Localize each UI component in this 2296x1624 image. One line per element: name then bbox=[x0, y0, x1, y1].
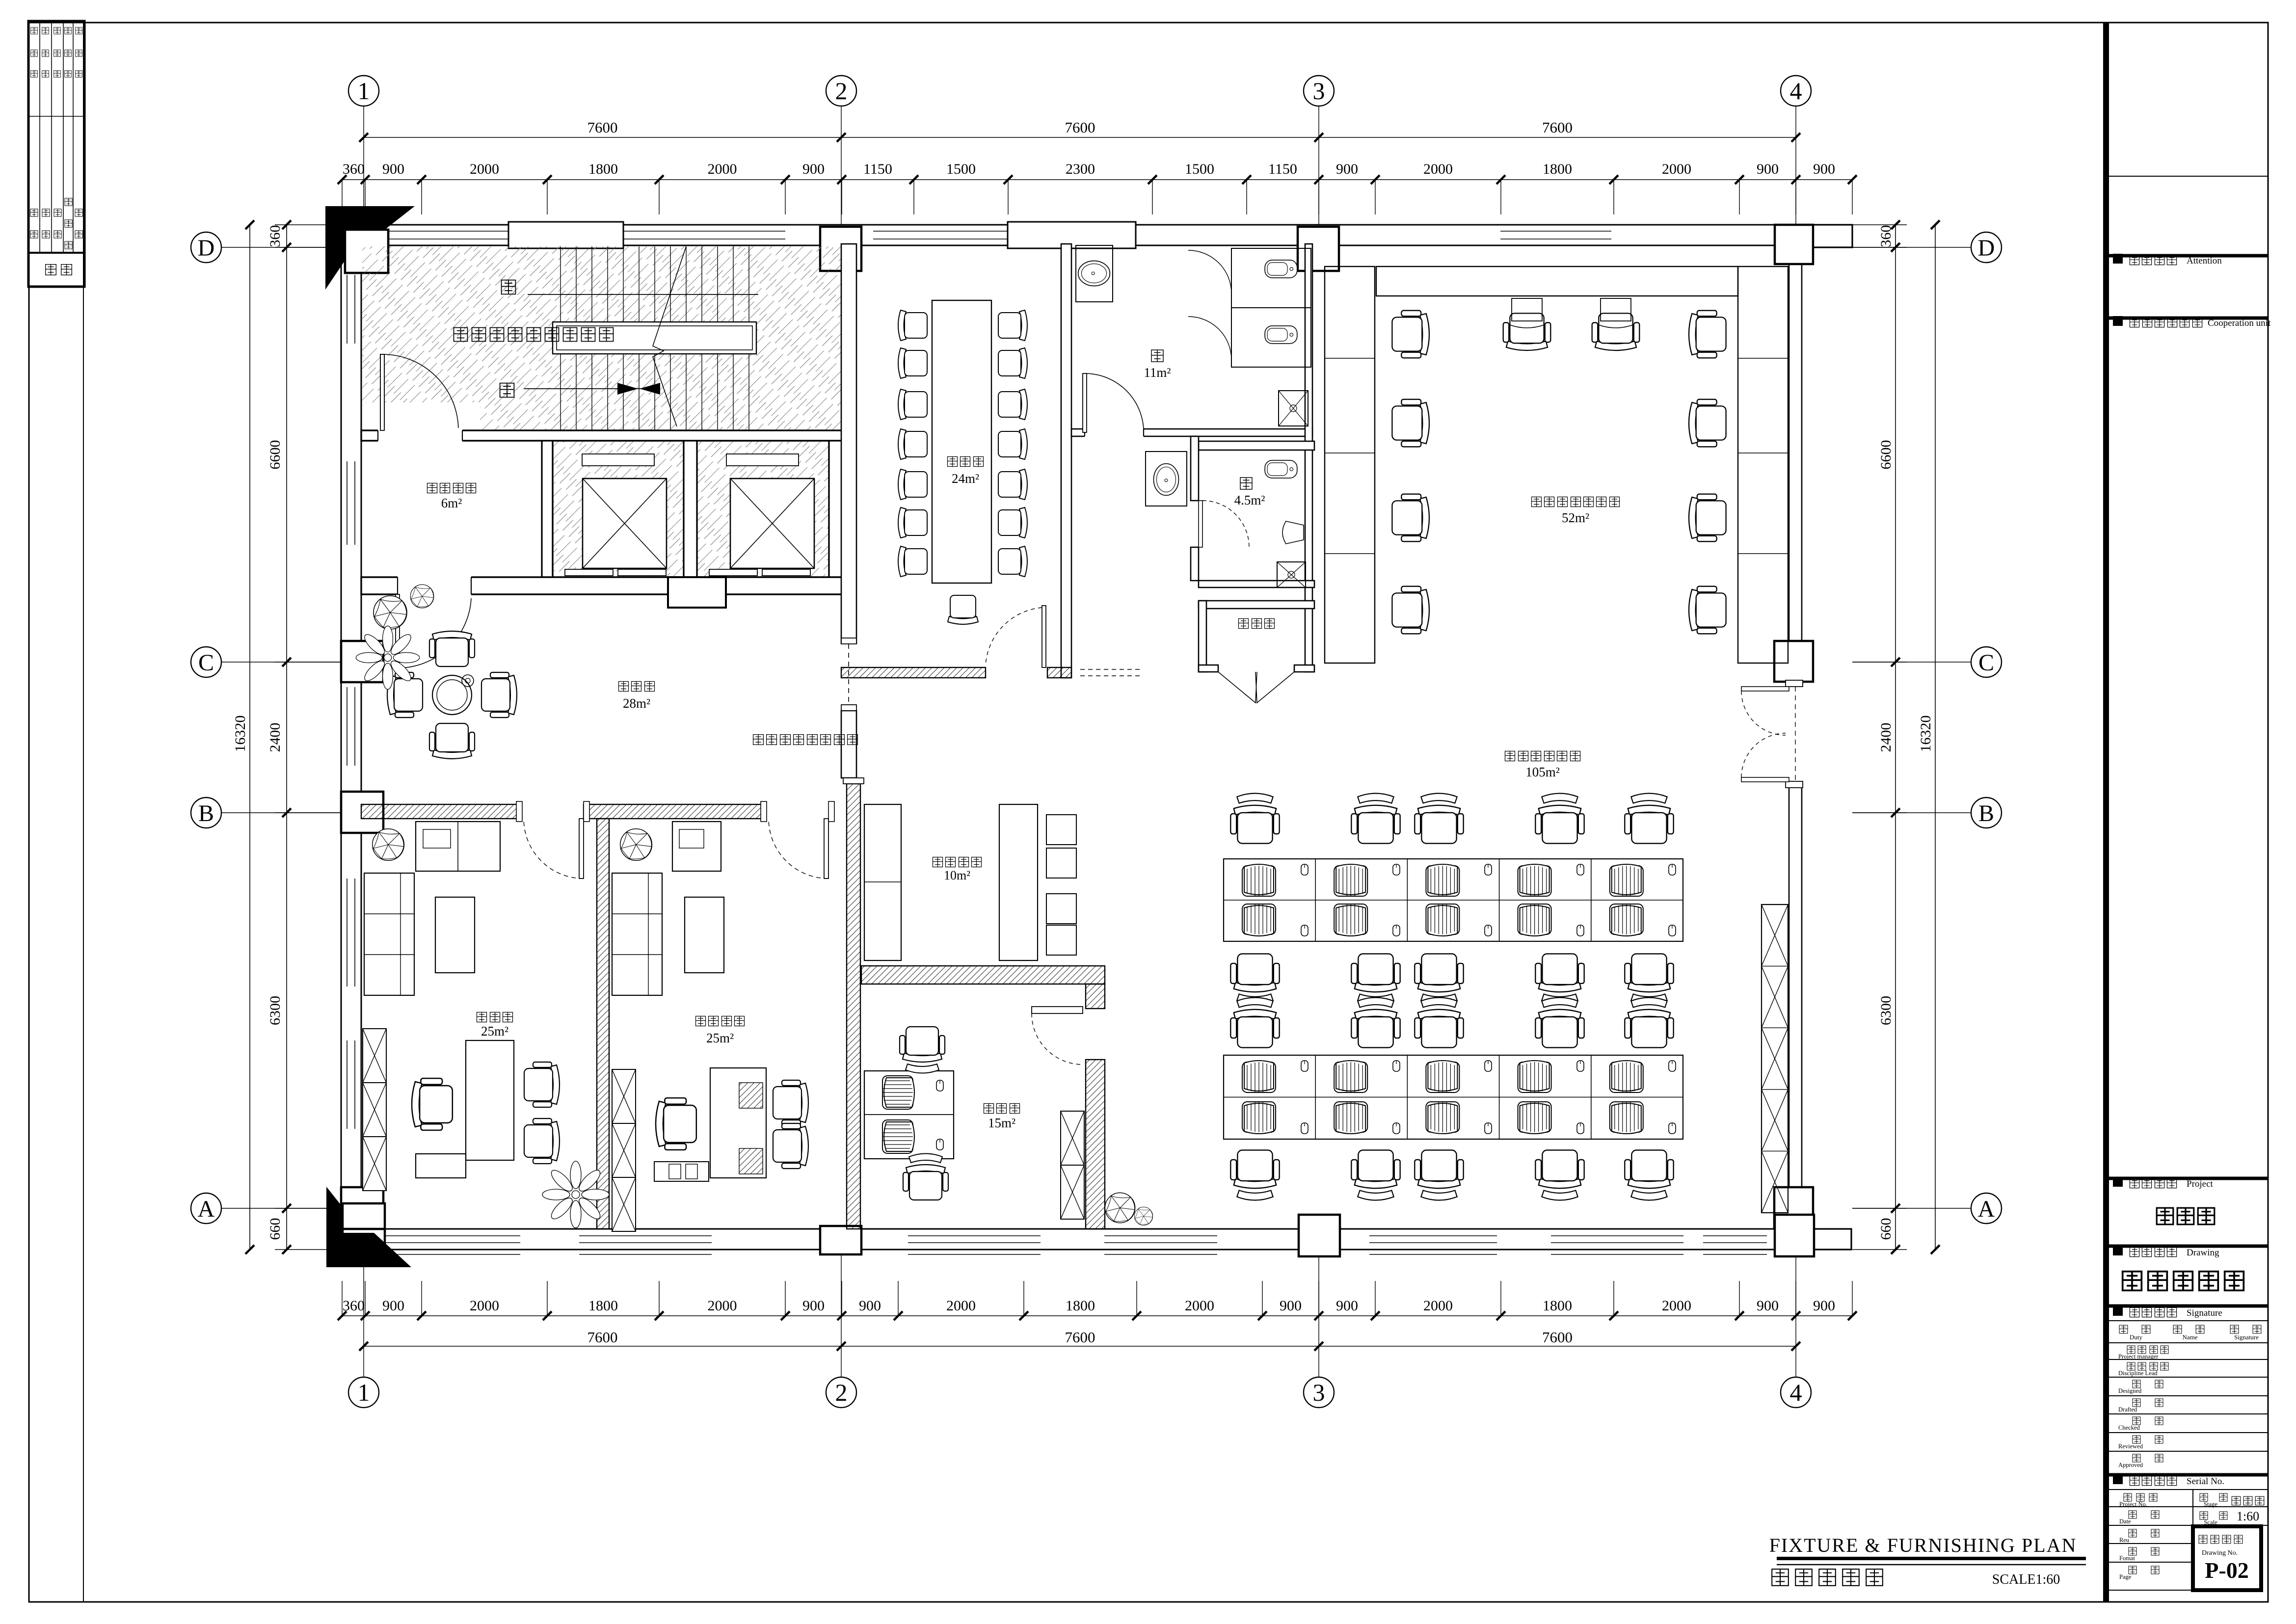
svg-text:360: 360 bbox=[343, 1298, 365, 1314]
svg-text:360: 360 bbox=[267, 225, 283, 247]
svg-text:2300: 2300 bbox=[1066, 161, 1095, 177]
svg-text:Fomat: Fomat bbox=[2119, 1555, 2135, 1562]
svg-text:4.5m²: 4.5m² bbox=[1234, 493, 1265, 507]
svg-text:15m²: 15m² bbox=[988, 1116, 1015, 1130]
svg-text:6m²: 6m² bbox=[441, 496, 462, 510]
svg-text:1800: 1800 bbox=[588, 161, 618, 177]
svg-text:28m²: 28m² bbox=[623, 696, 650, 711]
svg-text:7600: 7600 bbox=[1542, 1329, 1573, 1346]
svg-text:25m²: 25m² bbox=[706, 1031, 734, 1045]
svg-text:Designed: Designed bbox=[2118, 1387, 2142, 1394]
svg-text:Drafted: Drafted bbox=[2118, 1406, 2137, 1413]
svg-text:2000: 2000 bbox=[946, 1298, 976, 1314]
svg-text:900: 900 bbox=[1757, 161, 1779, 177]
svg-text:660: 660 bbox=[1878, 1218, 1894, 1240]
svg-text:900: 900 bbox=[1757, 1298, 1779, 1314]
svg-text:Checked: Checked bbox=[2118, 1424, 2140, 1431]
svg-text:25m²: 25m² bbox=[481, 1024, 508, 1038]
svg-text:2000: 2000 bbox=[1185, 1298, 1214, 1314]
svg-text:52m²: 52m² bbox=[1562, 510, 1589, 525]
svg-text:900: 900 bbox=[1280, 1298, 1302, 1314]
svg-text:Reu: Reu bbox=[2119, 1537, 2130, 1544]
svg-text:Duty: Duty bbox=[2130, 1333, 2143, 1341]
svg-text:16320: 16320 bbox=[1918, 716, 1934, 752]
svg-text:900: 900 bbox=[1336, 1298, 1358, 1314]
svg-text:B: B bbox=[1978, 800, 1994, 826]
svg-text:360: 360 bbox=[343, 161, 365, 177]
svg-text:900: 900 bbox=[802, 1298, 825, 1314]
svg-text:11m²: 11m² bbox=[1144, 365, 1171, 380]
svg-text:900: 900 bbox=[382, 161, 404, 177]
svg-text:SCALE1:60: SCALE1:60 bbox=[1992, 1572, 2060, 1587]
svg-text:6300: 6300 bbox=[267, 996, 283, 1025]
svg-text:4: 4 bbox=[1790, 1379, 1802, 1406]
svg-text:Name: Name bbox=[2182, 1333, 2197, 1341]
svg-text:3: 3 bbox=[1313, 1379, 1325, 1406]
svg-text:Project manager: Project manager bbox=[2118, 1353, 2159, 1360]
svg-text:900: 900 bbox=[1336, 161, 1358, 177]
svg-text:2000: 2000 bbox=[708, 161, 737, 177]
svg-text:2000: 2000 bbox=[1423, 161, 1453, 177]
svg-text:2: 2 bbox=[835, 1379, 848, 1406]
svg-text:10m²: 10m² bbox=[944, 868, 970, 882]
svg-text:P-02: P-02 bbox=[2205, 1558, 2248, 1583]
svg-text:1150: 1150 bbox=[863, 161, 892, 177]
svg-text:6600: 6600 bbox=[1878, 440, 1894, 470]
svg-text:7600: 7600 bbox=[1542, 119, 1573, 136]
svg-text:900: 900 bbox=[1813, 161, 1835, 177]
svg-text:24m²: 24m² bbox=[952, 471, 979, 486]
svg-text:3: 3 bbox=[1313, 77, 1325, 105]
svg-text:900: 900 bbox=[802, 161, 825, 177]
svg-text:1500: 1500 bbox=[946, 161, 976, 177]
svg-text:16320: 16320 bbox=[232, 716, 248, 752]
svg-text:2: 2 bbox=[835, 77, 848, 105]
svg-text:Date: Date bbox=[2119, 1518, 2131, 1525]
svg-text:2000: 2000 bbox=[1662, 161, 1691, 177]
svg-text:FIXTURE & FURNISHING PLAN: FIXTURE & FURNISHING PLAN bbox=[1769, 1534, 2077, 1556]
svg-text:Drawing No.: Drawing No. bbox=[2202, 1549, 2238, 1557]
svg-text:6600: 6600 bbox=[267, 440, 283, 470]
svg-text:900: 900 bbox=[1813, 1298, 1835, 1314]
svg-text:2400: 2400 bbox=[267, 723, 283, 752]
svg-text:Project No.: Project No. bbox=[2119, 1501, 2147, 1508]
svg-text:2000: 2000 bbox=[470, 1298, 499, 1314]
svg-text:6300: 6300 bbox=[1878, 996, 1894, 1025]
svg-text:900: 900 bbox=[382, 1298, 404, 1314]
svg-text:7600: 7600 bbox=[587, 119, 618, 136]
svg-text:Reviewed: Reviewed bbox=[2118, 1443, 2143, 1450]
svg-text:Drawing: Drawing bbox=[2187, 1248, 2219, 1258]
svg-text:Project: Project bbox=[2187, 1179, 2214, 1189]
svg-text:Cooperation unit: Cooperation unit bbox=[2208, 318, 2271, 328]
svg-text:1500: 1500 bbox=[1185, 161, 1214, 177]
svg-text:900: 900 bbox=[859, 1298, 881, 1314]
svg-text:2000: 2000 bbox=[1662, 1298, 1691, 1314]
svg-text:1:60: 1:60 bbox=[2237, 1509, 2259, 1523]
svg-text:A: A bbox=[1978, 1196, 1995, 1222]
svg-text:Approved: Approved bbox=[2118, 1462, 2143, 1468]
svg-text:1800: 1800 bbox=[1543, 1298, 1572, 1314]
svg-text:D: D bbox=[1978, 235, 1995, 261]
svg-text:7600: 7600 bbox=[587, 1329, 618, 1346]
svg-text:Stage: Stage bbox=[2204, 1501, 2217, 1508]
svg-text:1800: 1800 bbox=[1066, 1298, 1095, 1314]
svg-text:2000: 2000 bbox=[708, 1298, 737, 1314]
svg-text:660: 660 bbox=[267, 1218, 283, 1240]
svg-text:Signature: Signature bbox=[2234, 1333, 2259, 1341]
svg-text:1800: 1800 bbox=[588, 1298, 618, 1314]
svg-text:Signature: Signature bbox=[2187, 1308, 2222, 1318]
svg-text:C: C bbox=[198, 650, 214, 676]
svg-text:C: C bbox=[1978, 650, 1994, 676]
svg-text:2400: 2400 bbox=[1878, 723, 1894, 752]
svg-text:2000: 2000 bbox=[1423, 1298, 1453, 1314]
svg-text:B: B bbox=[198, 800, 214, 826]
svg-text:360: 360 bbox=[1878, 225, 1894, 247]
svg-text:A: A bbox=[198, 1196, 215, 1222]
svg-text:Attention: Attention bbox=[2187, 256, 2222, 266]
svg-text:D: D bbox=[198, 235, 215, 261]
svg-text:7600: 7600 bbox=[1065, 1329, 1095, 1346]
svg-text:1: 1 bbox=[358, 1379, 370, 1406]
svg-text:Discipline Lead: Discipline Lead bbox=[2118, 1370, 2158, 1377]
svg-text:1150: 1150 bbox=[1268, 161, 1297, 177]
svg-text:2000: 2000 bbox=[470, 161, 499, 177]
svg-text:105m²: 105m² bbox=[1525, 765, 1560, 779]
svg-text:1: 1 bbox=[358, 77, 370, 105]
svg-text:Page: Page bbox=[2119, 1573, 2132, 1580]
svg-text:4: 4 bbox=[1790, 77, 1802, 105]
svg-text:7600: 7600 bbox=[1065, 119, 1095, 136]
svg-text:1800: 1800 bbox=[1543, 161, 1572, 177]
svg-text:Serial No.: Serial No. bbox=[2187, 1476, 2224, 1487]
